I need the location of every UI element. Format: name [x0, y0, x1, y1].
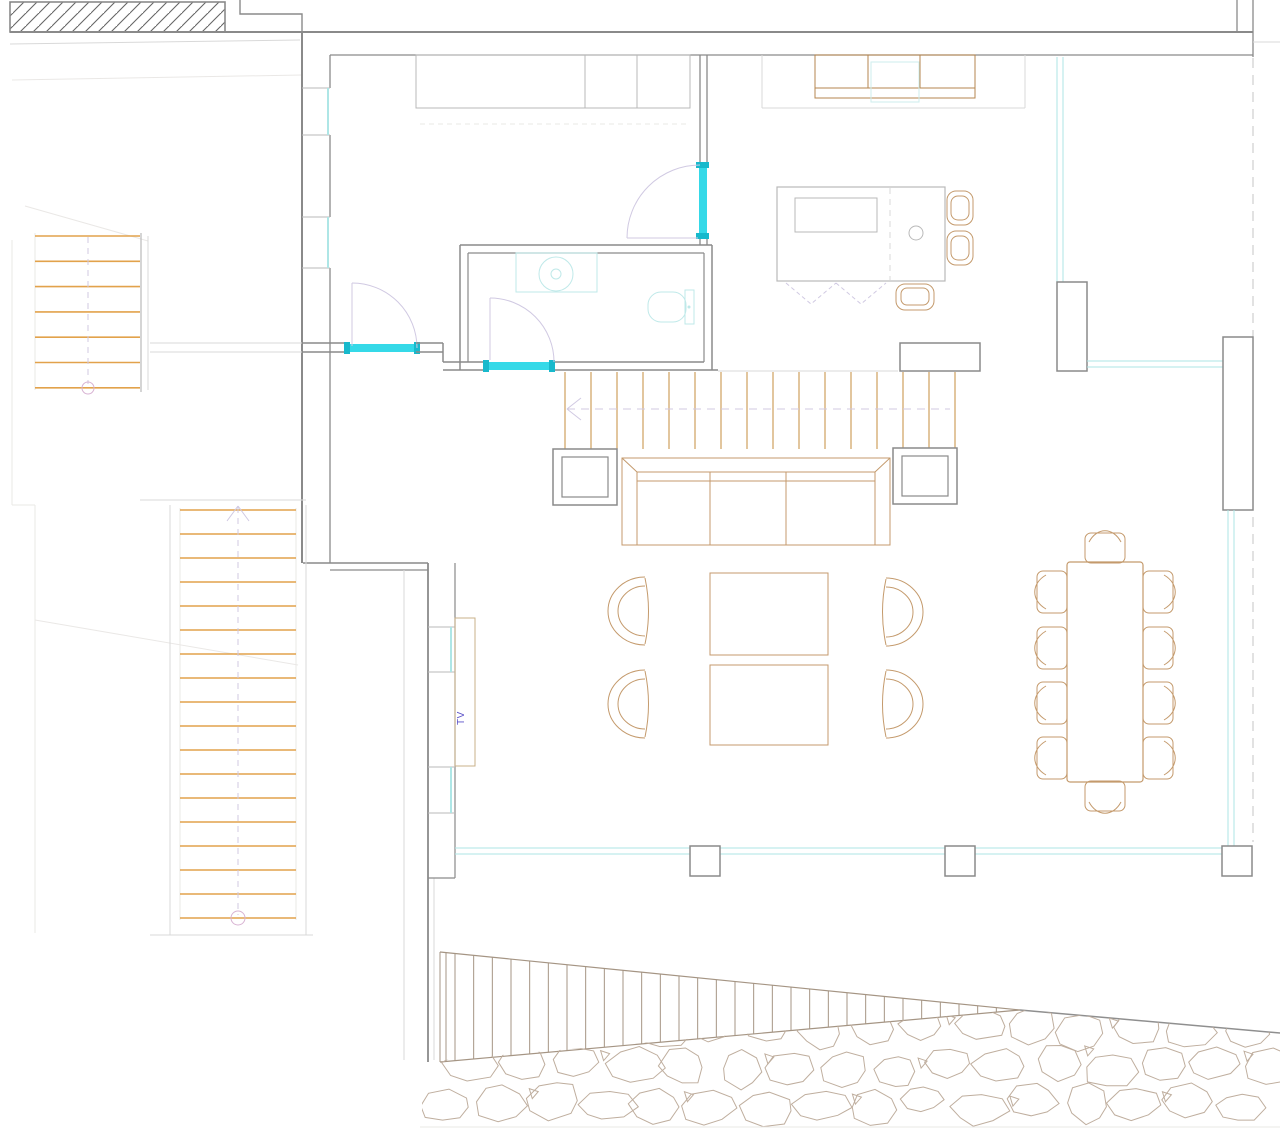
vanity-counter [516, 253, 597, 292]
stones [421, 1005, 1280, 1127]
paving-stone-chip [1274, 1020, 1280, 1030]
ramp-bottom-edge [440, 1010, 1020, 1062]
terrain-line [10, 40, 300, 44]
dining-chair-seat [1143, 682, 1173, 724]
dining-chair [1035, 627, 1067, 669]
armchair [608, 577, 649, 645]
dining-area [1035, 531, 1176, 814]
ramp-top-edge [440, 952, 1020, 1010]
dining-chair [1143, 682, 1175, 724]
walk-arrow [567, 398, 581, 409]
stair-treads [35, 236, 140, 388]
sink-drain [551, 269, 561, 279]
cooktop [795, 198, 877, 232]
dining-chair-seat [1037, 571, 1067, 613]
coffee-tables [710, 573, 828, 745]
paving-stone [1114, 1010, 1159, 1044]
paving-stone [421, 1089, 469, 1120]
armchair-seat-front [645, 671, 649, 737]
south-window-wall [455, 846, 1252, 876]
dining-chair-seat [1085, 533, 1125, 563]
dining-chair [1085, 781, 1125, 813]
main-staircase [140, 500, 313, 935]
bridge-decking [565, 371, 955, 449]
sofa-arm-mitre [875, 458, 890, 472]
paving-stone [1038, 1046, 1081, 1082]
walk-arrow [567, 409, 581, 420]
armchair-back-inner [886, 587, 913, 637]
paving-stone [724, 1050, 762, 1090]
east-window-wall [1057, 57, 1253, 846]
door-swing-arc [352, 283, 417, 348]
door-panel [699, 167, 707, 233]
armchair-back-outer [608, 577, 645, 645]
bar-stools [896, 191, 973, 310]
paving-stone [797, 1015, 839, 1050]
door-panel [348, 344, 416, 352]
paving-stone [605, 1047, 665, 1083]
deck-edge-line [1020, 1010, 1280, 1033]
island-sink [909, 226, 923, 240]
neighbor-building [10, 0, 302, 80]
appliance-swing-dashed [786, 283, 886, 304]
coffee-table [710, 573, 828, 655]
terrain-line [35, 620, 298, 665]
armchair [883, 578, 924, 646]
tv-cabinet [455, 618, 475, 766]
dining-chair-back [1164, 631, 1175, 665]
upper-staircase [35, 233, 148, 394]
wall-pier [945, 846, 975, 876]
kitchen [762, 55, 1025, 310]
stone-paving [421, 1005, 1280, 1127]
tv-wall: TV [303, 563, 475, 1062]
dining-chair-seat [1085, 781, 1125, 811]
paving-stone [442, 1047, 499, 1081]
paving-stone [1162, 1083, 1213, 1118]
sink-bowl [539, 257, 573, 291]
paving-stone [1189, 1047, 1240, 1079]
paving-stone [791, 1091, 852, 1120]
toilet [648, 290, 694, 324]
armchair [608, 670, 649, 738]
bar-stool-seat [951, 196, 969, 220]
paving-stone-chip [466, 1019, 475, 1029]
wall-pier [1223, 337, 1253, 510]
dining-chair [1035, 737, 1067, 779]
paving-stone [955, 1008, 1005, 1039]
armchair-back-outer [886, 670, 923, 738]
paving-stone [1068, 1083, 1107, 1125]
stair-arrow [227, 506, 238, 521]
paving-stone [765, 1053, 814, 1084]
dining-chair [1035, 682, 1067, 724]
neighbor-wall-step [240, 0, 302, 32]
corridor-wall [150, 283, 443, 362]
armchair-back-inner [618, 586, 645, 636]
bridge-slats [565, 372, 955, 449]
hatched-wall [10, 2, 225, 32]
dining-chair-back [1089, 531, 1121, 542]
dining-chair-back [1089, 802, 1121, 813]
dining-chair-back [1035, 686, 1046, 720]
paving-stone [925, 1049, 970, 1078]
dining-chair-seat [1037, 737, 1067, 779]
paving-stone [526, 1083, 577, 1121]
armchairs [608, 577, 923, 738]
dining-chair [1085, 531, 1125, 563]
armchair-seat-front [645, 578, 649, 644]
bathroom [443, 245, 718, 372]
wall-cabinets [815, 55, 975, 98]
paving-stone [1166, 1016, 1217, 1047]
armchair [883, 670, 924, 738]
paving-stone [851, 1014, 893, 1045]
paving-stone [658, 1048, 702, 1083]
sofa-outline [622, 458, 890, 545]
paving-stone [745, 1005, 789, 1041]
paving-stone-chip [1085, 1046, 1094, 1056]
paving-stone [900, 1087, 944, 1112]
columns [553, 448, 957, 505]
bedroom [416, 55, 709, 245]
door-cap [483, 360, 489, 372]
dining-chair-seat [1143, 571, 1173, 613]
vanity-sink [516, 253, 597, 292]
bar-stool-seat [901, 288, 929, 305]
paving-stone [477, 1012, 521, 1038]
terrain-line [12, 75, 302, 80]
stair-arrow [238, 506, 249, 521]
dining-chair-seat [1143, 737, 1173, 779]
paving-stone [1142, 1048, 1185, 1081]
deck-ramp [440, 952, 1280, 1062]
dining-chair-back [1164, 686, 1175, 720]
paving-stone-chip [789, 1008, 798, 1018]
armchair-seat-front [883, 671, 887, 737]
dining-chair-back [1035, 575, 1046, 609]
toilet-button [688, 306, 691, 309]
wall-pier [690, 846, 720, 876]
bar-stool-seat [951, 236, 969, 260]
paving-stone [682, 1090, 737, 1125]
dining-chair [1143, 737, 1175, 779]
paving-stone [874, 1057, 915, 1087]
paving-stone [528, 1016, 574, 1046]
paving-stone [852, 1089, 896, 1125]
tv-label: TV [456, 711, 467, 725]
paving-stone [1107, 1089, 1161, 1121]
armchair-seat-front [883, 579, 887, 645]
island-counter [777, 187, 945, 281]
sofa [622, 458, 890, 545]
door-swing-arc [490, 298, 554, 362]
wall-pier [1057, 282, 1087, 371]
armchair-back-outer [886, 578, 923, 646]
dining-chair [1143, 571, 1175, 613]
paving-stone [498, 1043, 545, 1079]
dining-chair-seat [1143, 627, 1173, 669]
door-swing-arc [627, 165, 700, 238]
paving-stone-chip [632, 1011, 641, 1021]
paving-stone [1087, 1055, 1139, 1086]
sofa-arm-mitre [622, 458, 637, 472]
dining-chair [1035, 571, 1067, 613]
armchair-back-inner [618, 679, 645, 729]
paving-stone-chip [1010, 1096, 1019, 1106]
paving-stone [1007, 1083, 1059, 1115]
north-wall [302, 0, 1280, 842]
door-cap [344, 342, 350, 354]
paving-stone [821, 1052, 865, 1088]
kitchen-island [777, 187, 945, 304]
armchair-back-outer [608, 670, 645, 738]
floor-plan-canvas: TV [0, 0, 1280, 1139]
paving-stone [553, 1048, 599, 1076]
wall-pier [1222, 846, 1252, 876]
paving-stone [1009, 1008, 1054, 1045]
dining-table [1067, 562, 1143, 782]
paving-stone [739, 1092, 791, 1126]
west-wall [302, 32, 330, 563]
paving-stone [950, 1095, 1010, 1127]
dining-chair-back [1164, 741, 1175, 775]
dining-chair-back [1164, 575, 1175, 609]
toilet-bowl [648, 292, 686, 322]
paving-stone [582, 1008, 626, 1042]
floor-plan-drawing: TV [0, 0, 1280, 1139]
paving-stone [636, 1011, 692, 1047]
dining-chair-seat [1037, 682, 1067, 724]
low-cabinet [900, 343, 980, 371]
ramp-slats [455, 954, 996, 1061]
paving-stone-chip [601, 1051, 610, 1061]
dining-chair-seat [1037, 627, 1067, 669]
coffee-table [710, 665, 828, 745]
paving-stone [1216, 1094, 1266, 1120]
paving-stone [971, 1049, 1024, 1081]
wardrobe [416, 55, 690, 108]
kitchen-sink [871, 62, 919, 102]
paving-stone [628, 1088, 679, 1124]
dining-chairs [1035, 531, 1176, 814]
dining-chair-back [1035, 631, 1046, 665]
door-panel [487, 362, 553, 370]
dining-chair-back [1035, 741, 1046, 775]
armchair-back-inner [886, 679, 913, 729]
dining-chair [1143, 627, 1175, 669]
paving-stone [477, 1085, 528, 1122]
stair-treads [180, 510, 296, 918]
site-terrain-lines [12, 206, 298, 933]
